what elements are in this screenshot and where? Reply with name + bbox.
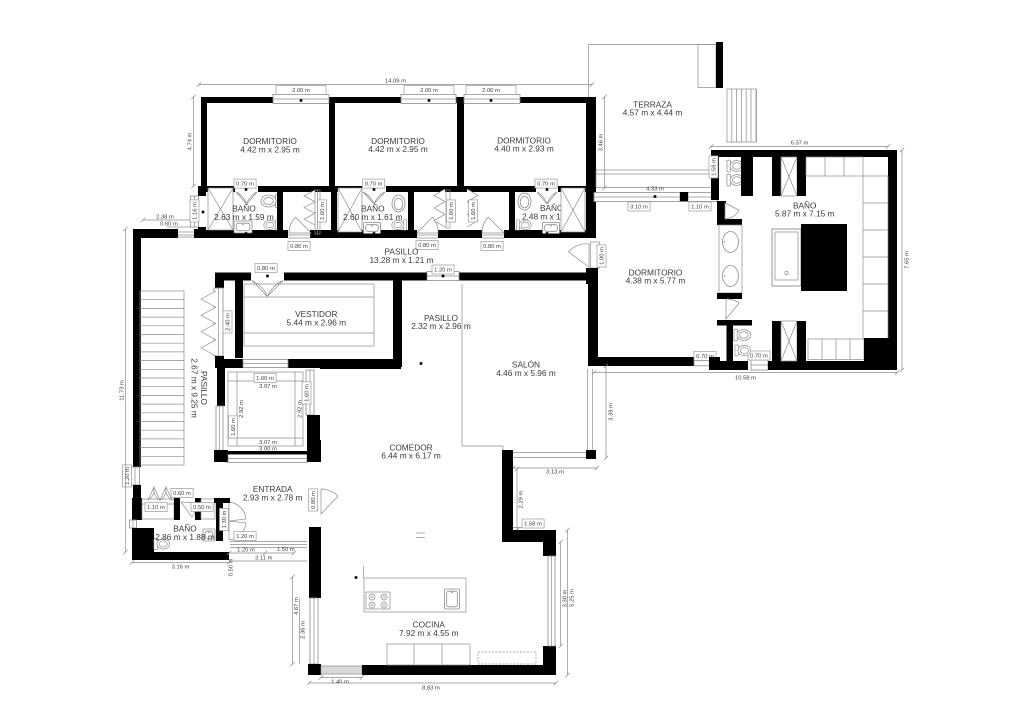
svg-text:10.58 m: 10.58 m [735,376,756,382]
svg-text:4.74 m: 4.74 m [188,132,194,150]
svg-text:2.86 m x 1.88 m: 2.86 m x 1.88 m [155,532,215,542]
svg-text:0.70 m: 0.70 m [365,182,383,188]
svg-text:3.39 m: 3.39 m [609,403,615,421]
svg-text:0.60 m: 0.60 m [160,222,178,228]
svg-text:1.30 m: 1.30 m [222,510,228,528]
svg-text:1.58 m: 1.58 m [712,158,718,176]
svg-text:4.42 m x 2.95 m: 4.42 m x 2.95 m [368,144,428,154]
svg-text:4.42 m x 2.95 m: 4.42 m x 2.95 m [240,145,300,155]
svg-text:7.92 m x 4.55 m: 7.92 m x 4.55 m [399,628,459,638]
svg-text:1.60 m: 1.60 m [320,202,326,220]
svg-text:2.29 m: 2.29 m [519,490,525,508]
svg-text:4.46 m x 5.96 m: 4.46 m x 5.96 m [496,368,556,378]
svg-text:0.80 m: 0.80 m [483,244,501,250]
svg-text:4.40 m x 2.93 m: 4.40 m x 2.93 m [494,144,554,154]
svg-text:1.50 m: 1.50 m [277,547,295,553]
svg-text:1.60 m: 1.60 m [231,418,237,436]
svg-text:5.87 m x 7.15 m: 5.87 m x 7.15 m [775,209,835,219]
svg-text:6.37 m: 6.37 m [791,141,809,147]
svg-text:5.25 m: 5.25 m [570,589,576,607]
svg-text:0.70 m: 0.70 m [236,182,254,188]
svg-text:0.80 m: 0.80 m [290,244,308,250]
svg-text:0.80 m: 0.80 m [257,266,275,272]
svg-text:0.50 m: 0.50 m [229,558,235,576]
svg-text:2.38 m: 2.38 m [156,215,174,221]
svg-text:2.63 m x 1.59 m: 2.63 m x 1.59 m [214,212,274,222]
svg-text:13.28 m x 1.21 m: 13.28 m x 1.21 m [369,255,433,265]
svg-text:1.20 m: 1.20 m [236,534,254,540]
svg-text:1.20 m: 1.20 m [237,548,255,554]
svg-text:3.00 m: 3.00 m [259,447,277,453]
svg-text:1.20 m: 1.20 m [434,268,452,274]
svg-text:3.46 m: 3.46 m [599,133,605,151]
svg-text:2.00 m: 2.00 m [420,88,438,94]
svg-text:1.60 m: 1.60 m [256,376,274,382]
svg-text:1.60 m: 1.60 m [305,384,311,402]
svg-text:2.60 m x 1.61 m: 2.60 m x 1.61 m [343,212,403,222]
svg-text:4.57 m x 4.44 m: 4.57 m x 4.44 m [623,108,683,118]
svg-text:0.70 m: 0.70 m [750,354,768,360]
svg-text:2.00 m: 2.00 m [292,88,310,94]
svg-text:1.10 m: 1.10 m [691,205,709,211]
svg-text:2.00 m: 2.00 m [482,88,500,94]
svg-text:0.70 m: 0.70 m [537,182,555,188]
svg-text:0.50 m: 0.50 m [193,505,211,511]
svg-text:1.16 m: 1.16 m [193,202,199,220]
svg-text:1.60 m: 1.60 m [449,202,455,220]
svg-text:8.83 m: 8.83 m [422,686,440,692]
svg-text:1.20 m: 1.20 m [125,467,131,485]
svg-text:1.58 m: 1.58 m [524,522,542,528]
svg-text:3.07 m: 3.07 m [259,384,277,390]
svg-text:2.40 m: 2.40 m [226,313,232,331]
svg-text:14.09 m: 14.09 m [385,79,406,85]
svg-text:2.92 m: 2.92 m [239,400,245,418]
svg-text:5.44 m x 2.96 m: 5.44 m x 2.96 m [287,317,347,327]
svg-text:1.40 m: 1.40 m [331,680,349,686]
svg-text:0.60 m: 0.60 m [173,491,191,497]
svg-text:4.38 m x 5.77 m: 4.38 m x 5.77 m [626,276,686,286]
svg-text:0.80 m: 0.80 m [311,491,317,509]
svg-text:1.00 m: 1.00 m [600,247,606,265]
svg-text:3.10 m: 3.10 m [630,205,648,211]
svg-text:6.44 m x 6.17 m: 6.44 m x 6.17 m [381,451,441,461]
svg-text:2.93 m x 2.78 m: 2.93 m x 2.78 m [243,492,303,502]
svg-text:3.16 m: 3.16 m [172,565,190,571]
svg-text:2.67 m x 9.25 m: 2.67 m x 9.25 m [190,358,200,418]
svg-text:11.73 m: 11.73 m [120,380,126,401]
svg-text:1.60 m: 1.60 m [471,202,477,220]
svg-text:3.13 m: 3.13 m [546,470,564,476]
svg-text:7.65 m: 7.65 m [905,251,911,269]
svg-text:0.80 m: 0.80 m [418,243,436,249]
svg-text:3.07 m: 3.07 m [259,440,277,446]
svg-text:1.10 m: 1.10 m [147,505,165,511]
svg-text:2.36 m: 2.36 m [301,621,307,639]
svg-text:4.33 m: 4.33 m [646,187,664,193]
svg-text:3.11 m: 3.11 m [255,556,272,562]
